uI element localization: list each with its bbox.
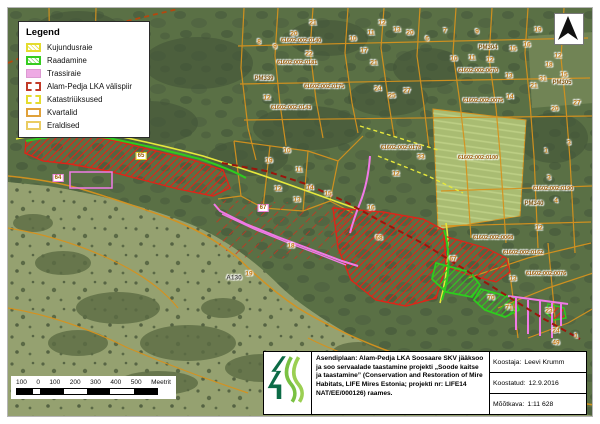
- map-label: 23: [545, 308, 552, 315]
- map-label: 20: [551, 106, 558, 113]
- legend-item-alam-pedja-lka-v-lispiir: Alam-Pedja LKA välispiir: [26, 82, 142, 91]
- date-row: Koostatud: 12.9.2016: [490, 373, 586, 394]
- map-label: 14: [506, 94, 513, 101]
- map-description: Asendiplaan: Alam-Pedja LKA Soosaare SKV…: [312, 352, 489, 414]
- map-label: 61602:002:0140: [281, 38, 321, 44]
- map-label: 15: [560, 72, 567, 79]
- map-label: 22: [305, 51, 312, 58]
- map-label: 31: [539, 76, 546, 83]
- map-label: 3: [547, 175, 551, 182]
- date-value: 12.9.2016: [529, 380, 559, 387]
- map-label: 65: [136, 152, 147, 160]
- scalebar-label: 100: [16, 379, 27, 386]
- yellow-hatch-swatch: [26, 43, 41, 52]
- map-label: 8: [257, 39, 261, 46]
- map-label: 14: [306, 185, 313, 192]
- map-label: 27: [573, 100, 580, 107]
- map-label: 70: [487, 295, 494, 302]
- map-label: 61602:002:0181: [277, 60, 317, 66]
- map-label: 61602:002:0076: [526, 271, 566, 277]
- map-label: 61602:002:0190: [533, 186, 573, 192]
- map-label: PM304: [478, 45, 497, 51]
- legend-item-label: Kujundusraie: [47, 43, 93, 52]
- map-label: 11: [296, 167, 303, 174]
- map-label: 68: [375, 235, 382, 242]
- map-label: 33: [417, 154, 424, 161]
- author-value: Leevi Krumm: [524, 359, 564, 366]
- map-label: 11: [368, 30, 375, 37]
- map-label: 20: [406, 30, 413, 37]
- scale-row: Mõõtkava: 1:11 628: [490, 394, 586, 414]
- info-box: Asendiplaan: Alam-Pedja LKA Soosaare SKV…: [263, 351, 587, 415]
- map-label: 61602:002:0162: [503, 250, 543, 256]
- map-label: 19: [265, 158, 272, 165]
- scale-label: Mõõtkava:: [493, 401, 524, 408]
- map-label: 10: [450, 56, 457, 63]
- map-label: 71: [505, 305, 512, 312]
- map-label: 15: [509, 46, 516, 53]
- scalebar: 1000100200300400500Meetrit: [11, 376, 176, 399]
- scalebar-label: 200: [70, 379, 81, 386]
- map-label: 9: [475, 29, 479, 36]
- legend-item-katastri-ksused: Katastriüksused: [26, 95, 142, 104]
- map-label: 20: [290, 31, 297, 38]
- green-hatch-swatch: [26, 56, 41, 65]
- map-label: 25: [388, 93, 395, 100]
- map-label: 19: [245, 271, 252, 278]
- map-label: 13: [293, 197, 300, 204]
- map-label: 19: [534, 27, 541, 34]
- map-label: 18: [545, 62, 552, 69]
- map-label: 12: [392, 171, 399, 178]
- map-label: 61602:002:0075: [463, 98, 503, 104]
- map-label: 13: [509, 276, 516, 283]
- scalebar-bar: [16, 388, 158, 395]
- map-label: 61602:002:0175: [304, 84, 344, 90]
- scalebar-labels: 1000100200300400500Meetrit: [16, 379, 171, 386]
- map-label: 6: [425, 36, 429, 43]
- map-label: 24: [552, 328, 559, 335]
- map-label: 12: [535, 225, 542, 232]
- map-label: 1: [544, 148, 548, 155]
- scalebar-label: 500: [131, 379, 142, 386]
- map-label: 61602:002:0068: [473, 235, 513, 241]
- yellow-dash-swatch: [26, 95, 41, 104]
- map-canvas: 61602:002:014061602:002:018161602:002:01…: [7, 7, 593, 417]
- legend-title: Legend: [26, 27, 142, 38]
- legend-item-label: Raadamine: [47, 56, 87, 65]
- legend-item-trassiraie: Trassiraie: [26, 69, 142, 78]
- project-logo: [264, 352, 312, 414]
- map-label: 17: [360, 48, 367, 55]
- legend-item-eraldised: Eraldised: [26, 121, 142, 130]
- north-arrow: [554, 13, 584, 45]
- scalebar-label: 400: [110, 379, 121, 386]
- map-label: PM340: [524, 201, 543, 207]
- map-label: 21: [530, 83, 537, 90]
- legend-item-raadamine: Raadamine: [26, 56, 142, 65]
- scalebar-label: Meetrit: [151, 379, 171, 386]
- life-mires-logo-icon: [264, 352, 304, 406]
- map-label: 4: [554, 198, 558, 205]
- map-label: 1: [574, 333, 578, 340]
- scalebar-label: 100: [49, 379, 60, 386]
- map-label: 61602:002:0143: [271, 105, 311, 111]
- map-label: 61602:002:0100: [458, 155, 498, 161]
- map-label: 16: [523, 42, 530, 49]
- map-label: 21: [309, 20, 316, 27]
- map-label: 12: [378, 20, 385, 27]
- legend-item-kujundusraie: Kujundusraie: [26, 43, 142, 52]
- legend-items: KujundusraieRaadamineTrassiraieAlam-Pedj…: [26, 43, 142, 130]
- legend-item-label: Alam-Pedja LKA välispiir: [47, 82, 132, 91]
- map-label: 16: [367, 205, 374, 212]
- map-label: 9: [273, 44, 277, 51]
- map-label: 64: [53, 174, 64, 182]
- map-label: 7: [443, 28, 447, 35]
- map-label: 11: [469, 55, 476, 62]
- legend-item-label: Kvartalid: [47, 108, 77, 117]
- map-label: 49: [552, 340, 559, 347]
- map-label: 18: [287, 243, 294, 250]
- map-label: 21: [370, 60, 377, 67]
- map-label: 10: [283, 148, 290, 155]
- map-metadata: Koostaja: Leevi Krumm Koostatud: 12.9.20…: [489, 352, 586, 414]
- orange-line-swatch: [26, 108, 41, 117]
- legend-item-label: Katastriüksused: [47, 95, 102, 104]
- author-label: Koostaja:: [493, 359, 521, 366]
- north-arrow-icon: [555, 14, 581, 42]
- map-label: 67: [258, 204, 269, 212]
- map-sheet: { "legend": { "title": "Legend", "items"…: [0, 0, 600, 424]
- map-label: 61602:002:0178: [381, 145, 421, 151]
- map-label: 67: [449, 256, 456, 263]
- scalebar-label: 0: [36, 379, 40, 386]
- map-label: 24: [374, 86, 381, 93]
- map-label: 13: [505, 73, 512, 80]
- map-label: 61602:002:0670: [458, 68, 498, 74]
- author-row: Koostaja: Leevi Krumm: [490, 352, 586, 373]
- lightorange-line-swatch: [26, 121, 41, 130]
- legend-item-label: Eraldised: [47, 121, 80, 130]
- map-label: 12: [274, 186, 281, 193]
- map-label: A130: [226, 275, 242, 282]
- map-label: 10: [349, 36, 356, 43]
- legend-item-label: Trassiraie: [47, 69, 81, 78]
- map-label: 27: [403, 88, 410, 95]
- map-label: 12: [554, 53, 561, 60]
- map-label: 15: [324, 191, 331, 198]
- legend-panel: Legend KujundusraieRaadamineTrassiraieAl…: [18, 21, 150, 138]
- date-label: Koostatud:: [493, 380, 526, 387]
- map-label: 12: [263, 95, 270, 102]
- map-label: 3: [567, 140, 571, 147]
- pink-fill-swatch: [26, 69, 41, 78]
- map-label: 13: [393, 27, 400, 34]
- legend-item-kvartalid: Kvartalid: [26, 108, 142, 117]
- scalebar-label: 300: [90, 379, 101, 386]
- map-label: PM305: [552, 80, 571, 86]
- scale-value: 1:11 628: [527, 401, 553, 408]
- map-label: 12: [486, 57, 493, 64]
- red-dash-swatch: [26, 82, 41, 91]
- map-label: PM339: [254, 76, 273, 82]
